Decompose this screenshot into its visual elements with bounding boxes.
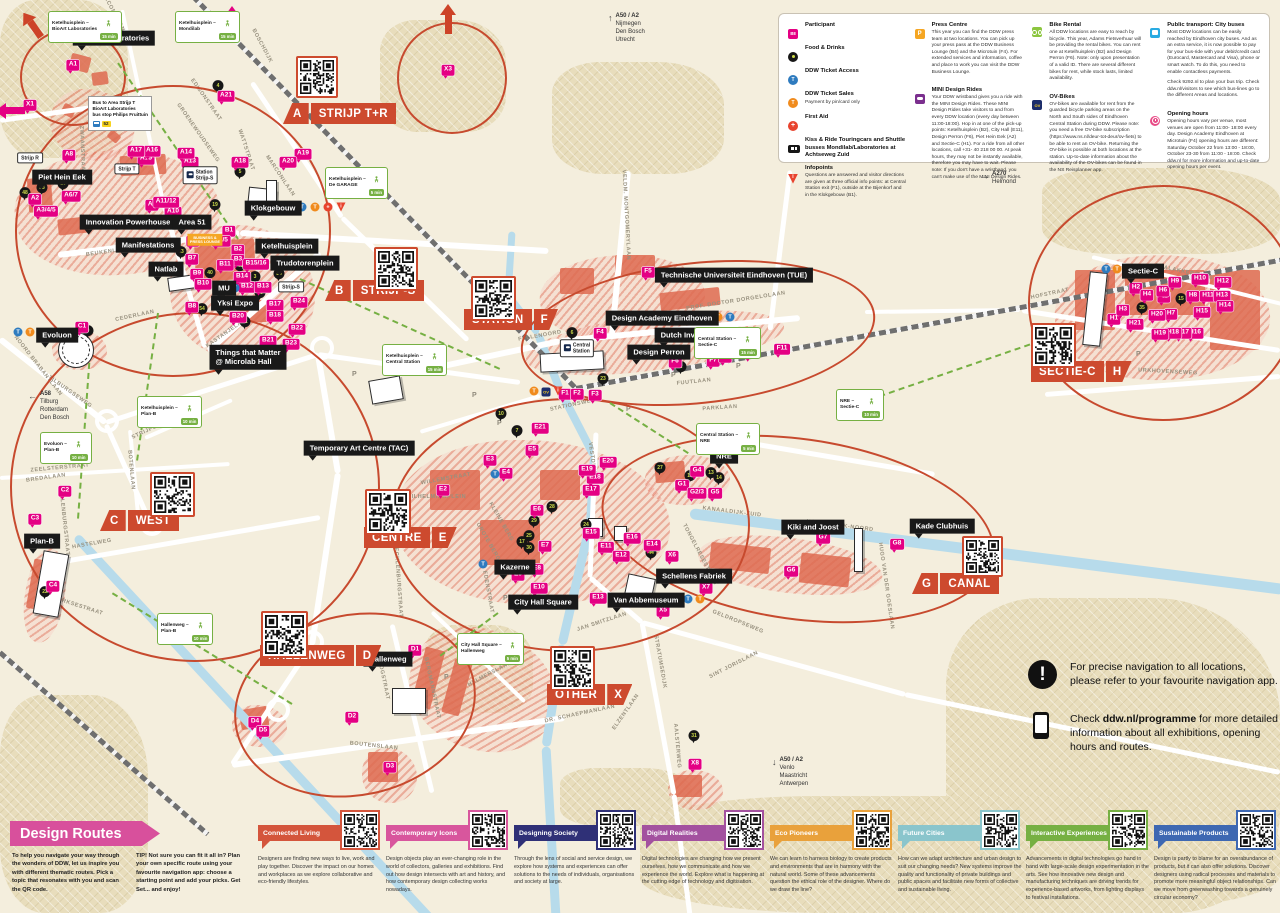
food-drinks-pin: 23 [598,373,609,384]
legend-item-label: DDW Ticket SalesPayment by pin/card only [805,91,907,106]
location-label: Sectie-C [1122,264,1164,279]
landmark-building [392,688,426,714]
venue-marker: D5 [256,726,269,737]
location-label: Trudotorenplein [270,256,339,271]
qr-code [365,489,411,535]
plate-text: Strijp T [118,166,135,172]
route-description: How can we adapt architecture and urban … [898,856,1022,895]
walking-sign-text: Ketelhuisplein – Central Station [386,354,423,367]
walking-time-badge: 10 min [192,635,210,642]
walking-person-icon [75,435,82,453]
walking-person-icon [744,330,751,348]
ticket-sales-icon: T [788,91,801,109]
legend-panel: B8ParticipantFood & DrinksTDDW Ticket Ac… [778,13,1270,163]
walking-time-sign: City Hall Square – Hallenweg5 min [457,633,524,665]
first-aid-icon: + [324,203,333,212]
walking-sign-text: Ketelhuisplein – De GARAGE [329,177,366,190]
venue-marker: F5 [642,267,655,278]
bus-icon [1150,22,1163,104]
venue-marker: E6 [531,505,544,516]
route-card: Sustainable ProductsDesign is partly to … [1154,810,1278,913]
food-drinks-pin: 15 [1176,293,1187,304]
first-aid-icon: + [788,114,801,132]
legend-transport-column: Public transport: City busesMost DDW loc… [1150,22,1260,205]
route-qr-code [1108,810,1148,850]
food-drinks-pin: 4 [213,80,224,91]
walking-route-dashed [860,340,1041,404]
bus-icon [93,121,100,127]
location-label: Van Abbemuseum [608,593,685,608]
route-banner-tail [390,841,398,849]
legend-section-mini: MINI Design RidesYour DDW wristband give… [915,87,1025,185]
landmark-building [854,528,863,572]
route-qr-code [596,810,636,850]
programme-url: ddw.nl/programme [1103,713,1197,725]
legend-item-sub: Questions are answered and visitor direc… [805,173,907,199]
ticket-access-icon: T [479,560,488,569]
food-drinks-pin: 6 [567,327,578,338]
location-label: Technische Universiteit Eindhoven (TUE) [655,268,813,283]
location-label: Design Perron [627,345,690,360]
highway-note: ←A58TilburgRotterdamDen Bosch [28,390,69,422]
walking-time-sign: Evoluon – Plan-B10 min [40,432,92,464]
legend-section-clock: Opening hoursOpening hours vary per venu… [1150,111,1260,176]
venue-marker: B1 [222,226,235,237]
location-label: MU [212,281,236,296]
qr-code [471,276,516,321]
location-label: Kade Clubhuis [910,519,975,534]
venue-marker: C2 [58,486,71,497]
route-banner-tail [646,841,654,849]
route-qr-code [724,810,764,850]
venue-marker: A17 [128,146,145,157]
walking-sign-text: Central Station – Sectie-C [698,337,736,350]
food-drinks-pin: 10 [496,408,507,419]
venue-marker: B24 [291,297,308,308]
venue-marker: B20 [230,312,247,323]
walking-time-badge: 5 min [505,655,520,662]
legend-item: B8Participant [788,22,907,40]
venue-marker: H14 [1217,301,1234,312]
navigation-note: ! For precise navigation to all location… [1028,660,1278,689]
route-banner-tail [1158,841,1166,849]
venue-marker: E2 [437,485,450,496]
walking-time-badge: 15 min [426,366,444,373]
highway-destinations: A50 / A2NijmegenDen BoschUtrecht [616,12,645,44]
venue-marker: H21 [1127,319,1144,330]
walking-sign-text: Hallenweg – Plan-B [161,623,189,636]
legend-section-title: Press Centre [932,22,1025,28]
venue-marker: H4 [1140,290,1153,301]
clock-icon [1150,111,1163,176]
location-label: Design Academy Eindhoven [606,311,719,326]
street-sign-plate: Strijp T [114,163,139,174]
venue-marker: A18 [232,157,249,168]
food-icon [788,45,801,63]
legend-section-text: Opening hours vary per venue, most venue… [1167,119,1260,172]
terrain-patch [552,62,724,174]
route-banner-tail [902,841,910,849]
legend-symbols-column: B8ParticipantFood & DrinksTDDW Ticket Ac… [788,22,907,205]
ov-bikes-icon: OV [542,388,551,397]
walking-person-icon [373,170,380,188]
food-drinks-pin: 40 [205,267,216,278]
mini-icon [915,87,928,185]
food-drinks-pin: 3 [250,271,261,282]
building-block [672,775,702,797]
walking-time-sign: Ketelhuisplein – BioArt Laboratories15 m… [48,11,122,43]
venue-marker: H3 [1116,305,1129,316]
location-label: Natlab [149,262,184,277]
qr-code [550,646,595,691]
area-route-circle [397,22,507,134]
qr-code [374,247,418,291]
venue-marker: G6 [784,566,798,577]
venue-marker: E20 [600,457,617,468]
route-card: Future CitiesHow can we adapt architectu… [898,810,1022,913]
street-name: AALSTERWEG [672,723,682,768]
venue-marker: B18 [267,311,284,322]
plate-text: Strijp R [21,155,39,161]
venue-marker: B8 [185,302,198,313]
venue-marker: H20 [1149,310,1166,321]
design-routes-intro-1: To help you navigate your way through th… [12,852,126,894]
location-label: Plan-B [24,534,60,549]
walking-person-icon [431,347,438,365]
venue-marker: G5 [708,488,722,499]
venue-marker: X3 [442,65,455,76]
area-letter: D [356,645,382,666]
walking-person-icon [105,14,112,32]
route-description: Through the lens of social and service d… [514,856,638,887]
landmark-building [368,375,404,404]
street-sign-plate: Strijp-S [278,281,304,292]
route-description: Digital technologies are changing how we… [642,856,766,887]
qr-code [296,56,338,98]
legend-section-text: OV-bikes are available for rent from the… [1049,102,1142,175]
ticket-access-icon: T [491,470,500,479]
walking-sign-text: Ketelhuisplein – Mondilab [179,21,216,34]
venue-marker: X1 [24,100,37,111]
route-description: We can learn to harness biology to creat… [770,856,894,895]
legend-item: +First Aid [788,114,907,132]
venue-marker: E3 [484,455,497,466]
bus-info-text: Bus to Area Strijp T BioArt Laboratories… [93,100,148,118]
venue-marker: X8 [689,759,702,770]
area-route-circle [1028,185,1280,421]
legend-section-title: Bike Rental [1049,22,1142,28]
venue-marker: G2/3 [687,488,706,499]
location-label: Manifestations [116,238,181,253]
street-sign-plate: Strijp R [17,152,43,163]
ticket-sales-icon: T [530,387,539,396]
business-press-lounge-label: BUSINESS & PRESS LOUNGE [187,234,222,246]
route-card: Interactive ExperiencesAdvancements in d… [1026,810,1150,913]
bike-icon [1032,22,1045,87]
venue-marker: H19 [1152,329,1169,340]
food-drinks-pin: 30 [524,542,535,553]
street-sign-plate: Station Strijp-S [183,166,218,184]
ticket-access-icon: T [14,328,23,337]
location-label: Innovation Powerhouse [80,215,177,230]
legend-section-title: Opening hours [1167,111,1260,117]
legend-item-label: InfopointsQuestions are answered and vis… [805,165,907,200]
location-label: Piet Hein Eek [32,170,92,185]
ticket-sales-icon: T [1113,265,1122,274]
walking-time-sign: Hallenweg – Plan-B10 min [157,613,213,645]
ticket-access-icon: T [1102,265,1111,274]
location-label: Area 51 [172,215,211,230]
legend-section-title: MINI Design Rides [932,87,1025,93]
legend-item: Food & Drinks [788,45,907,63]
route-qr-code [340,810,380,850]
venue-marker: A2 [28,194,41,205]
food-drinks-pin: 14 [714,472,725,483]
design-routes-title: Design Routes [10,821,160,846]
venue-marker: F3 [589,390,602,401]
venue-marker: D2 [345,712,358,723]
walking-time-badge: 10 min [862,411,880,418]
legend-section-text: Most DDW locations can be easily reached… [1167,30,1260,76]
walking-sign-text: City Hall Square – Hallenweg [461,643,502,656]
legend-section-text: This year you can find the DDW press tea… [932,30,1025,76]
venue-marker: G8 [890,539,904,550]
walking-time-badge: 5 min [741,445,756,452]
route-description: Design is partly to blame for an overabu… [1154,856,1278,903]
walking-time-badge: 10 min [181,418,199,425]
walking-time-badge: 15 min [739,349,757,356]
location-label: Klokgebouw [245,201,302,216]
walking-person-icon [868,392,875,410]
kiss-ride-icon [788,137,801,155]
venue-marker: B9 [190,269,203,280]
ticket-sales-icon: T [311,203,320,212]
location-label: Kiki and Joost [781,520,844,535]
legend-item-label: Food & Drinks [805,45,907,53]
route-description: Advancements in digital technologies go … [1026,856,1150,903]
venue-marker: B7 [185,254,198,265]
legend-section-text-2: Check 9292.nl to plan your bus trip. Che… [1167,80,1260,100]
train-station-icon [187,172,194,179]
highway-arrow-icon: ↑ [608,12,613,44]
programme-note: Check ddw.nl/programme for more detailed… [1028,712,1278,755]
venue-marker: B13 [255,282,272,293]
walking-person-icon [186,399,193,417]
venue-marker: A11/12 [153,197,179,208]
location-label: Things that Matter @ Microlab Hall [210,345,287,370]
venue-marker: E5 [526,445,539,456]
venue-marker: A16 [144,146,161,157]
food-drinks-pin: 19 [210,199,221,210]
navigation-note-text: For precise navigation to all locations,… [1070,660,1278,688]
highway-arrow-icon: ↓ [772,756,777,788]
legend-item: TDDW Ticket SalesPayment by pin/card onl… [788,91,907,109]
ddw-map-poster: MARCONILAANMARCONILAANBOSCHDIJKZWAANSTRA… [0,0,1280,913]
phone-icon [1033,712,1049,739]
venue-marker: C3 [28,514,41,525]
walking-time-sign: Central Station – NRE5 min [696,423,760,455]
route-card: Contemporary IconsDesign objects play an… [386,810,510,913]
venue-marker: E14 [644,540,661,551]
venue-marker: E11 [598,542,614,553]
route-description: Design objects play an ever-changing rol… [386,856,510,895]
venue-marker: X7 [700,583,713,594]
street-name: PARKLAAN [702,404,738,412]
walking-time-badge: 15 min [100,33,118,40]
venue-marker: E4 [500,468,513,479]
route-banner-tail [262,841,270,849]
route-card-list: Connected LivingDesigners are finding ne… [258,810,1280,913]
programme-note-text: Check ddw.nl/programme for more detailed… [1070,712,1278,755]
area-letter: A [283,103,309,124]
walking-person-icon [745,426,752,444]
area-name: STRIJP T+R [311,103,396,124]
exclamation-icon: ! [1028,660,1057,689]
route-banner-tail [518,841,526,849]
venue-marker: B2 [231,245,244,256]
venue-marker: B11 [217,260,234,271]
food-drinks-pin: 27 [655,462,666,473]
venue-marker: H7 [1164,309,1177,320]
venue-marker: F2 [571,389,584,400]
venue-marker: E15 [583,528,600,539]
qr-code [150,472,195,517]
walking-time-sign: Ketelhuisplein – Mondilab15 min [175,11,240,43]
route-description: Designers are finding new ways to live, … [258,856,382,887]
venue-marker: F4 [594,328,607,339]
street-sign-plate: Central Station [560,339,594,357]
venue-marker: H9 [1168,277,1181,288]
infopoint-icon: i [788,165,801,184]
venue-marker: C4 [46,581,59,592]
route-banner-tail [1030,841,1038,849]
press-icon: P [915,22,928,80]
route-qr-code [1236,810,1276,850]
qr-code [261,611,308,658]
walking-sign-text: Ketelhuisplein – Plan-B [141,406,178,419]
legend-item: iInfopointsQuestions are answered and vi… [788,165,907,200]
highway-destinations: A50 / A2VenloMaastrichtAntwerpen [780,756,809,788]
venue-marker: A20 [280,157,297,168]
walking-time-sign: Ketelhuisplein – Central Station15 min [382,344,447,376]
legend-item-label: DDW Ticket Access [805,68,907,76]
ticket-sales-icon: T [696,595,705,604]
walking-person-icon [197,616,204,634]
walking-time-sign: NRE – Sectie-C10 min [836,389,884,421]
walking-time-badge: 10 min [70,454,88,461]
street-name: SINT JORISLAAN [708,650,759,680]
plate-text: Strijp-S [282,284,300,290]
venue-marker: E12 [613,551,630,562]
road [641,620,905,697]
route-card: Connected LivingDesigners are finding ne… [258,810,382,913]
plate-text: Central Station [573,342,590,355]
area-letter: H [1106,361,1132,382]
ticket-access-icon: T [788,68,801,86]
highway-note: ↓A50 / A2VenloMaastrichtAntwerpen [772,756,808,788]
area-letter: X [607,684,632,705]
walking-time-badge: 15 min [219,33,237,40]
area-letter: G [912,573,938,594]
venue-marker: E7 [539,541,552,552]
route-qr-code [852,810,892,850]
train-station-icon [564,345,571,352]
location-label: Temporary Art Centre (TAC) [304,441,415,456]
food-drinks-pin: 28 [547,501,558,512]
qr-code [1031,323,1076,368]
location-label: Schellens Fabriek [656,569,732,584]
venue-marker: E21 [532,423,549,434]
bus-line-badge: 52 [102,121,111,127]
venue-marker: B17 [267,300,284,311]
parking-letter: P [352,371,357,378]
location-label: Ketelhuisplein [255,239,318,254]
route-card: Eco PioneersWe can learn to harness biol… [770,810,894,913]
walking-sign-text: Ketelhuisplein – BioArt Laboratories [52,21,97,34]
walking-sign-text: NRE – Sectie-C [840,399,859,412]
route-arrow [0,103,25,119]
venue-marker: B10 [195,279,212,290]
qr-code [962,536,1003,577]
legend-section-bike: Bike RentalAll DDW locations are easy to… [1032,22,1142,87]
participant-icon: B8 [788,22,801,40]
route-arrow [440,4,456,34]
highway-arrow-icon: ← [28,390,37,422]
legend-section-press: PPress CentreThis year you can find the … [915,22,1025,80]
parking-letter: P [472,392,477,399]
food-drinks-pin: 7 [512,425,523,436]
bus-info-box: Bus to Area Strijp T BioArt Laboratories… [88,96,152,131]
route-qr-code [468,810,508,850]
legend-section-title: OV-Bikes [1049,94,1142,100]
legend-section-text: Your DDW wristband gives you a ride with… [932,95,1025,181]
venue-marker: H15 [1194,307,1211,318]
ticket-access-icon: T [726,313,735,322]
walking-person-icon [224,14,231,32]
area-letter: E [432,527,457,548]
venue-marker: H6 [1156,286,1169,297]
venue-marker: E19 [579,465,596,476]
legend-bike-column: Bike RentalAll DDW locations are easy to… [1032,22,1142,205]
location-label: Evoluon [36,328,78,343]
plate-text: Station Strijp-S [196,169,214,182]
highway-destinations: A58TilburgRotterdamDen Bosch [40,390,69,422]
venue-marker: A8 [62,150,75,161]
route-card: Digital RealitiesDigital technologies ar… [642,810,766,913]
venue-marker: D3 [383,762,396,773]
venue-marker: E16 [624,533,641,544]
venue-marker: A6/7 [62,191,81,202]
location-label: Kazerne [494,560,535,575]
legend-press-column: PPress CentreThis year you can find the … [915,22,1025,205]
venue-marker: H8 [1186,291,1199,302]
ticket-access-icon: T [684,595,693,604]
legend-item: TDDW Ticket Access [788,68,907,86]
legend-item: Kiss & Ride Touringcars and Shuttle buss… [788,137,907,160]
area-letter: C [100,510,126,531]
legend-section-text: All DDW locations are easy to reach by b… [1049,30,1142,83]
legend-section-bus: Public transport: City busesMost DDW loc… [1150,22,1260,104]
venue-marker: A3/4/5 [34,206,58,217]
route-card: Designing SocietyThrough the lens of soc… [514,810,638,913]
food-drinks-pin: 31 [689,730,700,741]
highway-note: ↑A50 / A2NijmegenDen BoschUtrecht [608,12,645,44]
venue-marker: H13 [1214,291,1231,302]
walking-time-sign: Central Station – Sectie-C15 min [694,327,761,359]
ticket-sales-icon: T [26,328,35,337]
area-letter: F [534,309,558,330]
venue-marker: A1 [66,60,79,70]
